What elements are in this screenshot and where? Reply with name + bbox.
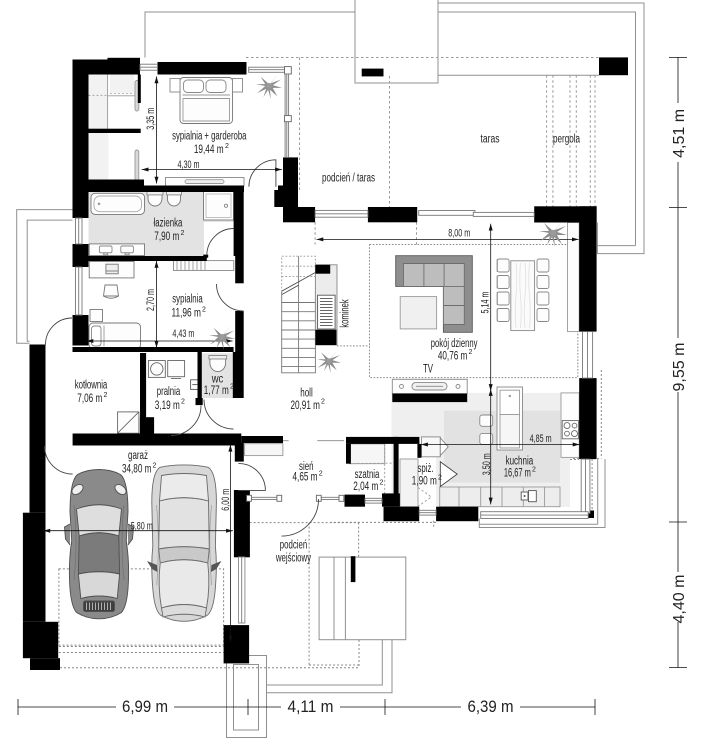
svg-text:5,80 m: 5,80 m bbox=[131, 520, 153, 532]
svg-text:szatnia: szatnia bbox=[355, 469, 380, 481]
svg-text:16,67 m: 16,67 m bbox=[504, 468, 531, 480]
svg-text:sypialnia: sypialnia bbox=[172, 294, 203, 306]
svg-text:4,43 m: 4,43 m bbox=[172, 328, 194, 340]
svg-text:2: 2 bbox=[181, 399, 185, 406]
svg-text:TV: TV bbox=[423, 363, 433, 375]
svg-text:pralnia: pralnia bbox=[157, 386, 181, 398]
svg-text:9,55 m: 9,55 m bbox=[671, 343, 688, 392]
svg-text:taras: taras bbox=[481, 134, 500, 146]
svg-text:2,70 m: 2,70 m bbox=[145, 289, 157, 311]
svg-text:6,99 m: 6,99 m bbox=[122, 697, 168, 716]
svg-text:2: 2 bbox=[153, 462, 157, 469]
svg-text:2: 2 bbox=[202, 306, 206, 313]
svg-text:4,11 m: 4,11 m bbox=[288, 697, 334, 716]
svg-text:2: 2 bbox=[104, 392, 108, 399]
svg-text:1,90 m: 1,90 m bbox=[412, 476, 437, 488]
svg-text:5,14 m: 5,14 m bbox=[479, 292, 491, 314]
svg-text:34,80 m: 34,80 m bbox=[122, 464, 152, 476]
svg-text:20,91 m: 20,91 m bbox=[290, 400, 320, 412]
svg-text:sypialnia + garderoba: sypialnia + garderoba bbox=[172, 130, 247, 142]
svg-text:4,85 m: 4,85 m bbox=[530, 433, 552, 445]
svg-text:7,90 m: 7,90 m bbox=[154, 231, 179, 243]
svg-text:3,19 m: 3,19 m bbox=[155, 400, 180, 412]
svg-text:2,04 m: 2,04 m bbox=[353, 481, 378, 493]
svg-text:19,44 m: 19,44 m bbox=[194, 144, 224, 156]
svg-text:2: 2 bbox=[469, 349, 473, 356]
svg-text:4,51 m: 4,51 m bbox=[671, 109, 688, 158]
svg-text:2: 2 bbox=[321, 399, 325, 406]
svg-text:2: 2 bbox=[380, 480, 384, 487]
svg-text:kuchnia: kuchnia bbox=[506, 456, 534, 468]
svg-text:7,06 m: 7,06 m bbox=[77, 393, 102, 405]
svg-text:wejściowy: wejściowy bbox=[275, 553, 311, 565]
svg-text:2: 2 bbox=[319, 471, 323, 478]
svg-text:6,00 m: 6,00 m bbox=[220, 489, 232, 511]
svg-text:podcień: podcień bbox=[280, 539, 307, 551]
svg-text:kotłownia: kotłownia bbox=[75, 379, 108, 391]
svg-text:pergola: pergola bbox=[553, 134, 580, 146]
svg-text:2: 2 bbox=[230, 384, 234, 391]
svg-text:4,40 m: 4,40 m bbox=[671, 575, 688, 624]
svg-text:kominek: kominek bbox=[340, 299, 352, 327]
svg-text:podcień / taras: podcień / taras bbox=[322, 172, 375, 184]
svg-text:3,50 m: 3,50 m bbox=[481, 453, 493, 475]
svg-text:2: 2 bbox=[181, 230, 185, 237]
svg-text:2: 2 bbox=[225, 143, 229, 150]
svg-text:garaż: garaż bbox=[128, 450, 148, 462]
svg-text:6,39 m: 6,39 m bbox=[468, 697, 514, 716]
svg-text:2: 2 bbox=[532, 467, 536, 474]
svg-text:4,30 m: 4,30 m bbox=[178, 159, 200, 171]
svg-text:spiż.: spiż. bbox=[417, 463, 433, 475]
svg-text:8,00 m: 8,00 m bbox=[448, 227, 470, 239]
svg-text:1,77 m: 1,77 m bbox=[204, 385, 229, 397]
svg-text:3,35 m: 3,35 m bbox=[145, 108, 157, 130]
svg-text:holl: holl bbox=[300, 387, 313, 399]
svg-text:łazienka: łazienka bbox=[154, 217, 183, 229]
svg-text:11,96 m: 11,96 m bbox=[171, 308, 201, 320]
svg-text:2: 2 bbox=[438, 474, 442, 481]
svg-text:4,65 m: 4,65 m bbox=[293, 472, 318, 484]
svg-text:40,76 m: 40,76 m bbox=[438, 350, 468, 362]
